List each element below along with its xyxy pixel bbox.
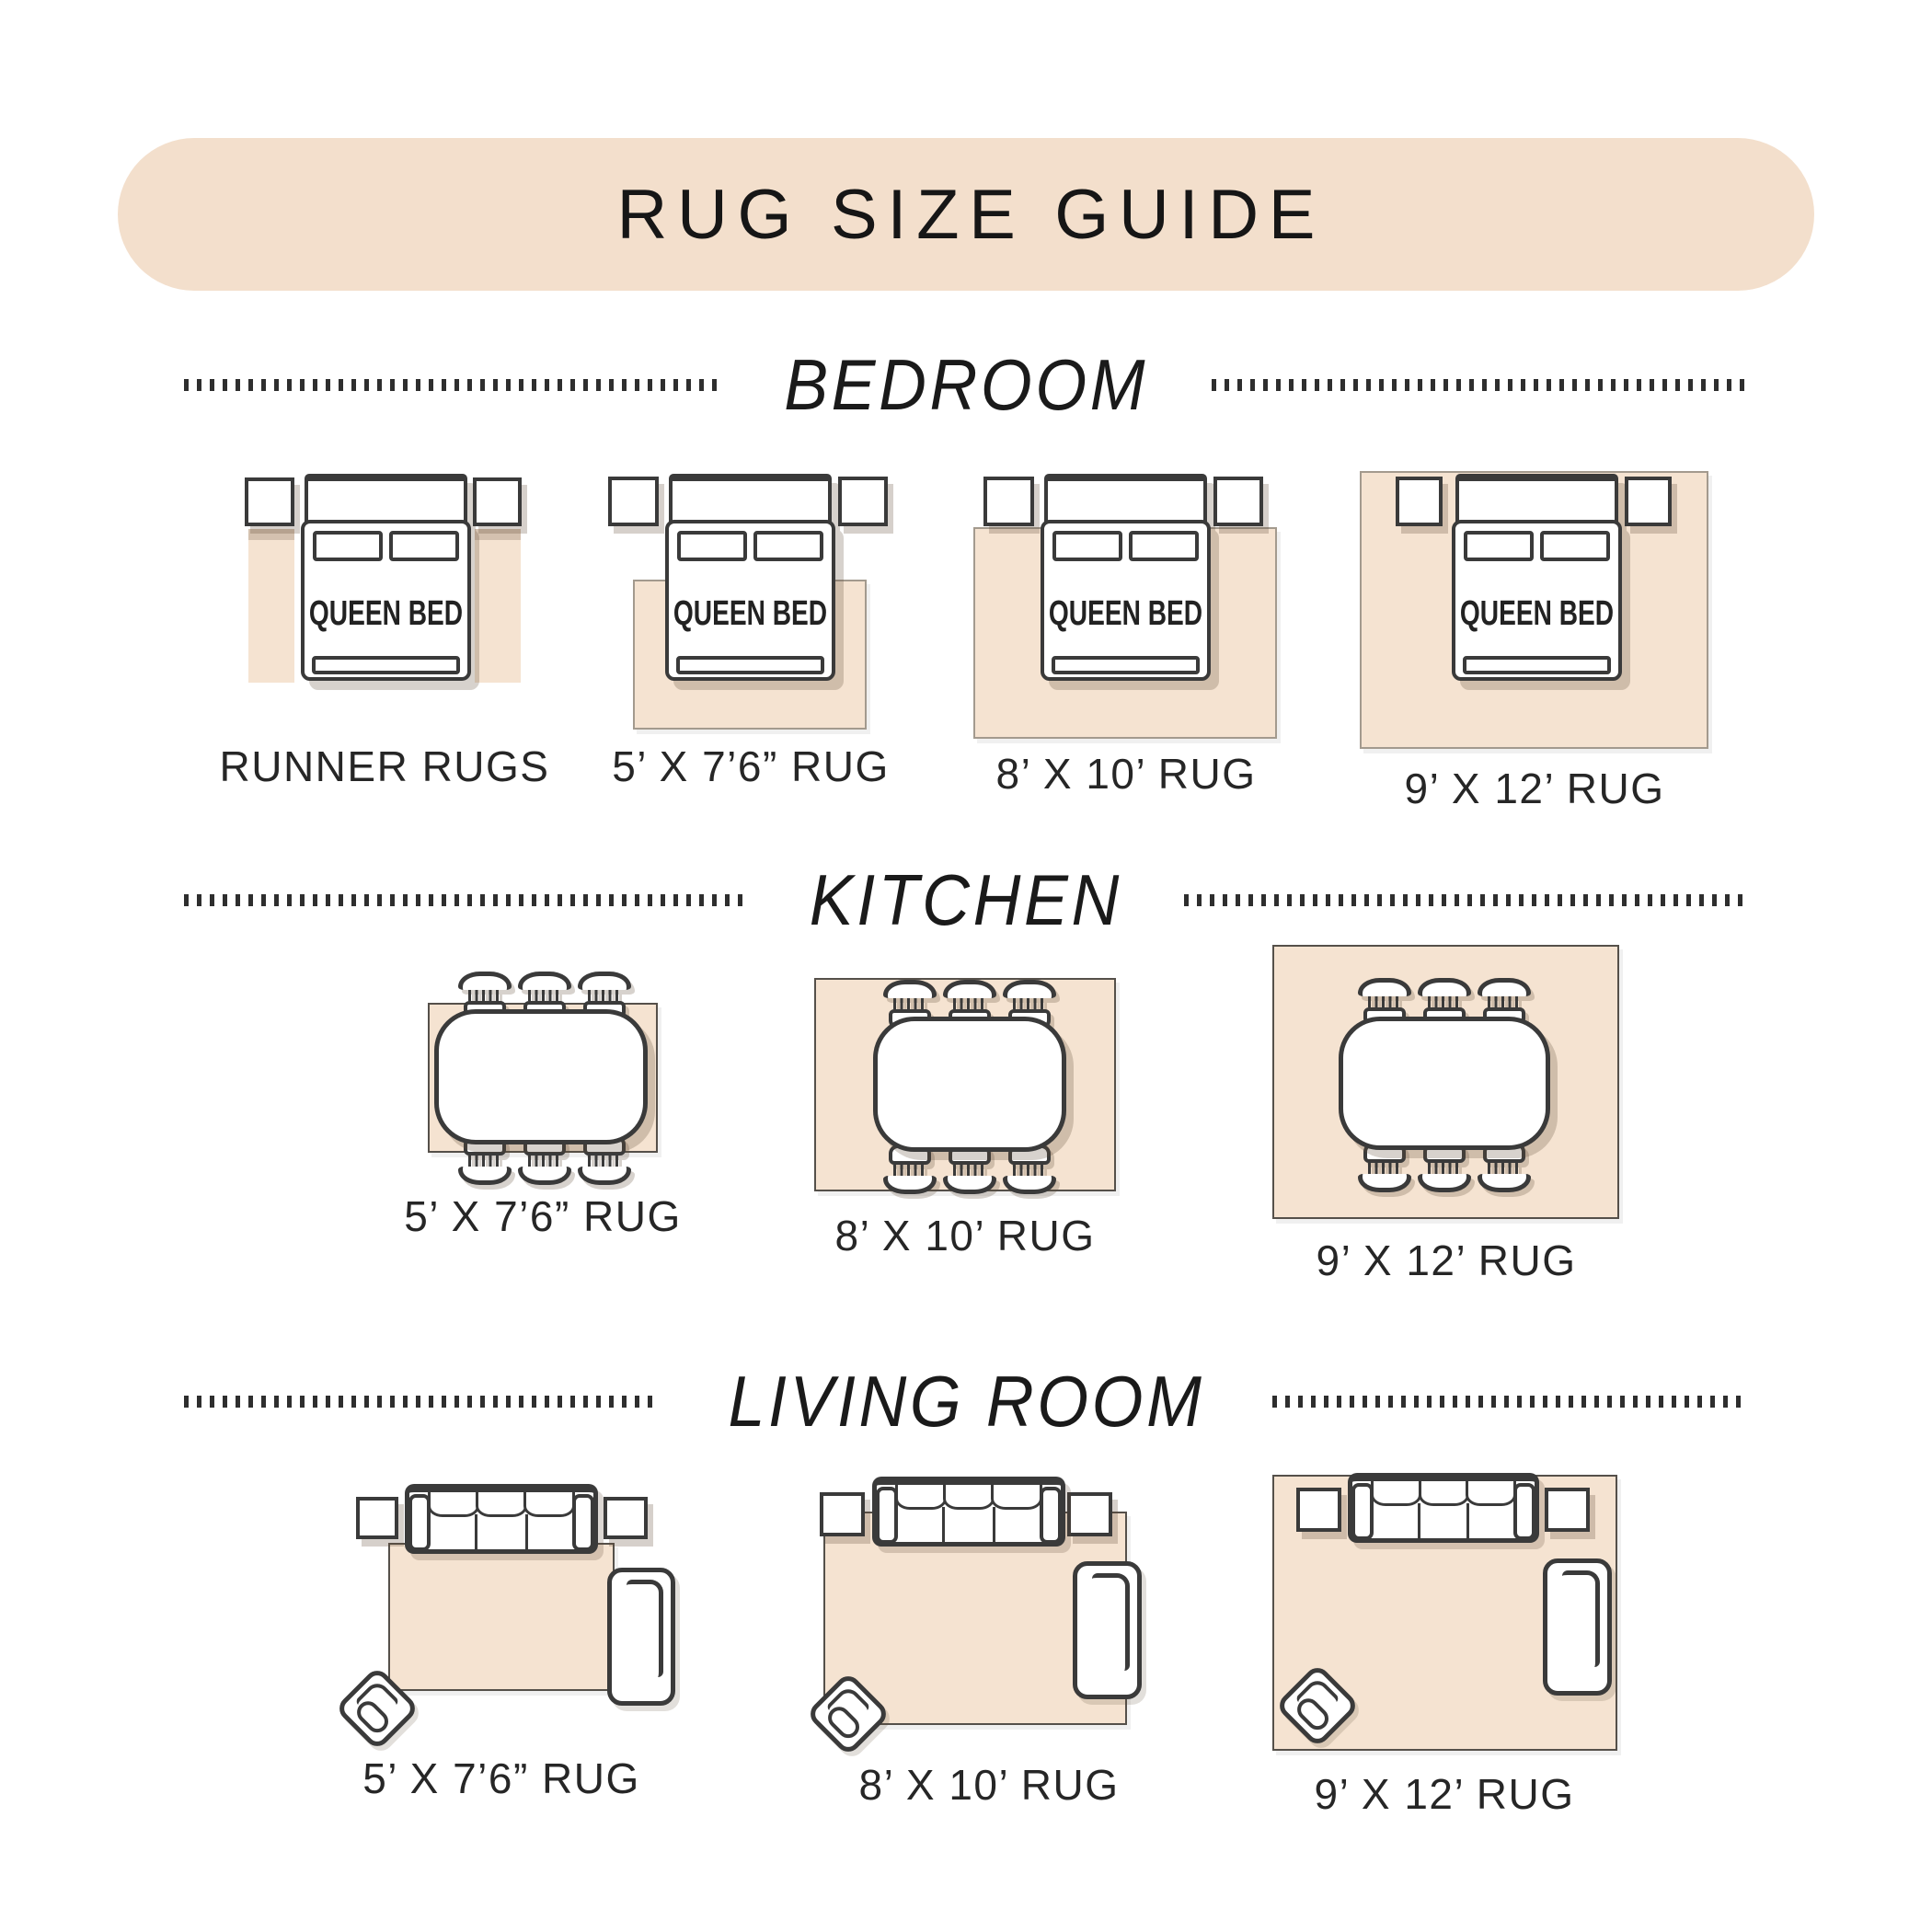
end-table-right bbox=[1545, 1488, 1590, 1532]
accent-chair-body bbox=[1274, 1662, 1360, 1748]
sofa-illustration bbox=[1348, 1473, 1539, 1543]
chair-cushion-line bbox=[1562, 1570, 1600, 1667]
accent-chair bbox=[1287, 1675, 1348, 1736]
rug-size-label: 9’ X 12’ RUG bbox=[1314, 1769, 1574, 1819]
side-chair bbox=[1543, 1558, 1612, 1696]
sofa-back-cushions bbox=[1371, 1481, 1516, 1506]
sofa-arm-left bbox=[1351, 1483, 1374, 1540]
sofa-arm-right bbox=[1513, 1483, 1535, 1540]
living-room-9x12-diagram: 9’ X 12’ RUG bbox=[0, 0, 1932, 1932]
rug-size-guide-infographic: RUG SIZE GUIDE BEDROOM KITCHEN LIVING RO… bbox=[0, 0, 1932, 1932]
end-table-left bbox=[1296, 1488, 1341, 1532]
sofa-seat-cushions bbox=[1371, 1503, 1516, 1538]
